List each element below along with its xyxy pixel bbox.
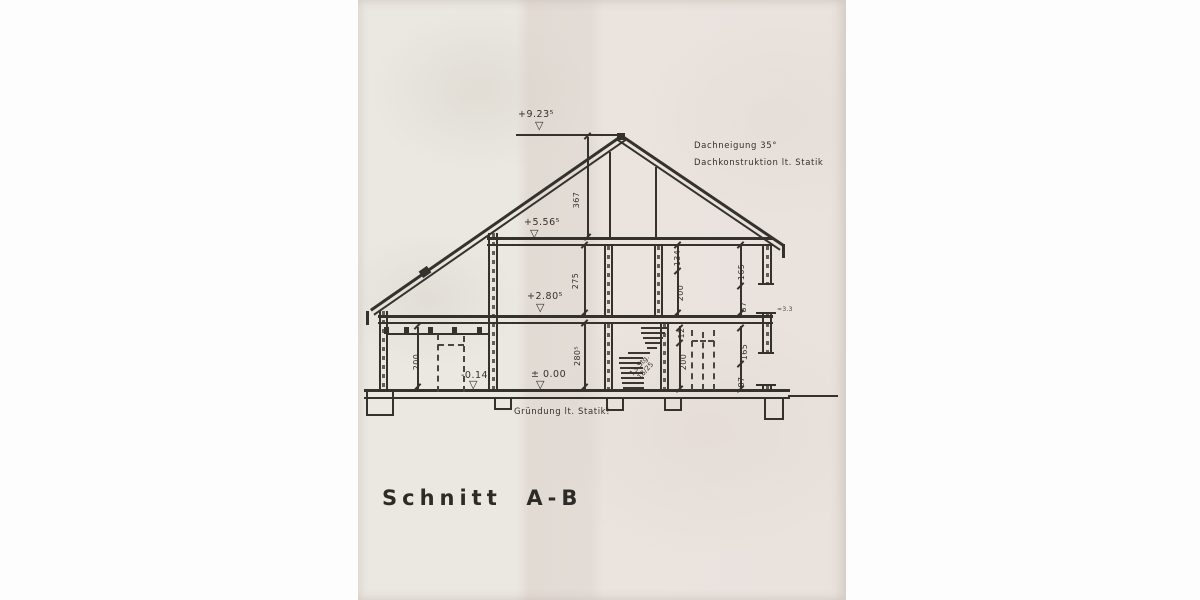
ground-floor-slab bbox=[364, 389, 790, 399]
dim-label-upper-storey: 275 bbox=[570, 264, 580, 298]
right-wall-upper-segment bbox=[762, 246, 772, 284]
dim-label-upper-window: 165 bbox=[736, 255, 746, 289]
right-wall-mid-segment bbox=[762, 314, 772, 353]
ground-door-dash-left bbox=[691, 330, 693, 390]
garage-door-dash-left bbox=[437, 334, 439, 392]
scanned-blueprint-canvas: 367 275 280⁵ 200 134 200 12 200 165 87 1… bbox=[0, 0, 1200, 600]
dim-label-roof-height: 367 bbox=[571, 183, 581, 217]
dim-line-ground-storey bbox=[584, 324, 586, 390]
level-marker-icon: ▽ bbox=[469, 380, 477, 390]
upper-floor-slab bbox=[378, 315, 773, 324]
garage-door-dash-lintel bbox=[438, 344, 464, 346]
stair-step-line bbox=[641, 332, 665, 334]
grade-line bbox=[788, 395, 838, 397]
interior-wall-1-upper bbox=[604, 246, 613, 315]
dim-label-garage-door: 200 bbox=[411, 345, 421, 379]
footing-mid-2 bbox=[664, 399, 682, 411]
interior-wall-2-upper bbox=[654, 246, 663, 315]
ground-door-dash-lintel bbox=[692, 340, 714, 342]
drawing-title: Schnitt A-B bbox=[382, 486, 582, 510]
upper-window-head bbox=[758, 283, 774, 285]
dim-label-ground-window: 165 bbox=[739, 335, 749, 369]
footing-right bbox=[764, 398, 784, 420]
stair-step-line bbox=[641, 327, 669, 329]
chimney-line-left bbox=[609, 152, 611, 240]
level-label-upper: +2.80⁵ bbox=[527, 291, 563, 302]
section-drawing: 367 275 280⁵ 200 134 200 12 200 165 87 1… bbox=[0, 0, 1200, 600]
dim-label-ground-storey: 280⁵ bbox=[572, 339, 582, 373]
interior-wall-1-ground bbox=[604, 324, 613, 390]
level-marker-icon: ▽ bbox=[536, 303, 544, 313]
foundation-note: Gründung lt. Statik! bbox=[514, 407, 610, 417]
stair-step-line bbox=[622, 382, 644, 384]
ground-window-head bbox=[758, 352, 774, 354]
roof-construction-note: Dachkonstruktion lt. Statik bbox=[694, 158, 823, 168]
ridge-dimension-line bbox=[516, 134, 620, 136]
joist-dot bbox=[428, 327, 433, 334]
dim-label-ground-door: 200 bbox=[678, 345, 688, 379]
ground-door-dash-right bbox=[713, 330, 715, 390]
level-marker-icon: ▽ bbox=[536, 380, 544, 390]
level-marker-icon: ▽ bbox=[530, 229, 538, 239]
chimney-line-right bbox=[655, 167, 657, 240]
garage-outer-wall bbox=[379, 311, 388, 390]
joist-dot bbox=[477, 327, 482, 334]
stair-step-line bbox=[643, 337, 663, 339]
dim-label-upper-door: 200 bbox=[675, 276, 685, 310]
dim-label-upper-lintel: 134 bbox=[672, 241, 682, 275]
roof-pitch-note: Dachneigung 35° bbox=[694, 141, 777, 151]
upper-window-sill bbox=[756, 312, 776, 314]
stair-step-line bbox=[647, 347, 657, 349]
left-eave-cap bbox=[366, 311, 369, 325]
stair-step-line bbox=[645, 342, 661, 344]
house-left-wall bbox=[488, 233, 498, 390]
joist-dot bbox=[384, 327, 389, 334]
eaves-level-mark: ≈3.3 bbox=[777, 306, 793, 313]
ground-window-sill bbox=[756, 384, 776, 386]
joist-dot bbox=[404, 327, 409, 334]
level-marker-icon: ▽ bbox=[535, 121, 543, 131]
dim-label-ground-sill: 87 bbox=[736, 365, 746, 399]
dim-line-upper-storey bbox=[584, 246, 586, 316]
dim-line-roof-height bbox=[587, 137, 589, 240]
joist-dot bbox=[452, 327, 457, 334]
right-eave-cap bbox=[782, 244, 785, 258]
stair-landing-line bbox=[628, 352, 650, 354]
footing-left bbox=[366, 390, 394, 416]
footing-house-left bbox=[494, 398, 512, 410]
dim-label-upper-sill: 87 bbox=[738, 290, 748, 324]
stair-step-line bbox=[623, 387, 644, 389]
